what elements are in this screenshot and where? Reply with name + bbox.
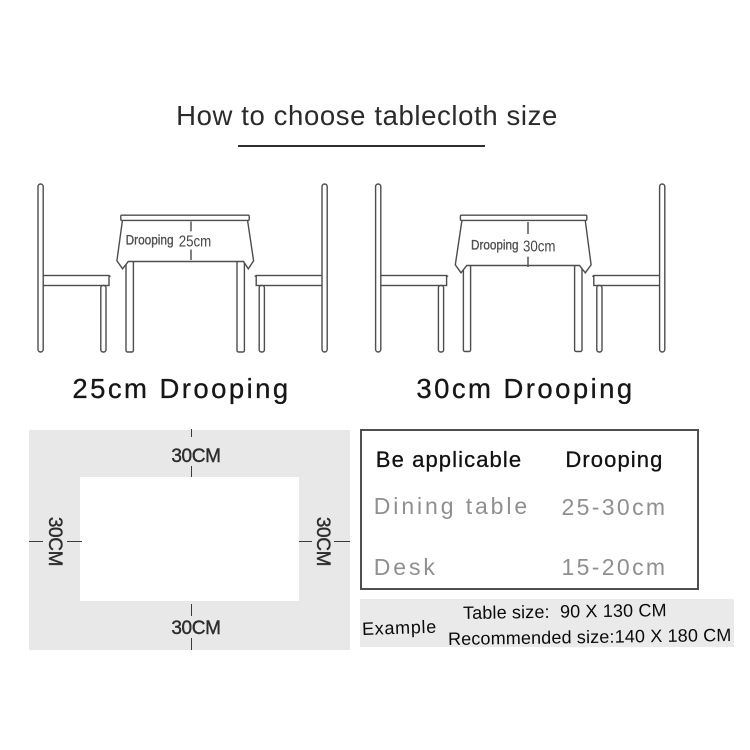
svg-text:Drooping: Drooping [471, 236, 519, 252]
svg-text:30cm: 30cm [523, 238, 556, 255]
svg-text:Drooping: Drooping [126, 232, 174, 248]
svg-text:25cm: 25cm [179, 234, 212, 251]
